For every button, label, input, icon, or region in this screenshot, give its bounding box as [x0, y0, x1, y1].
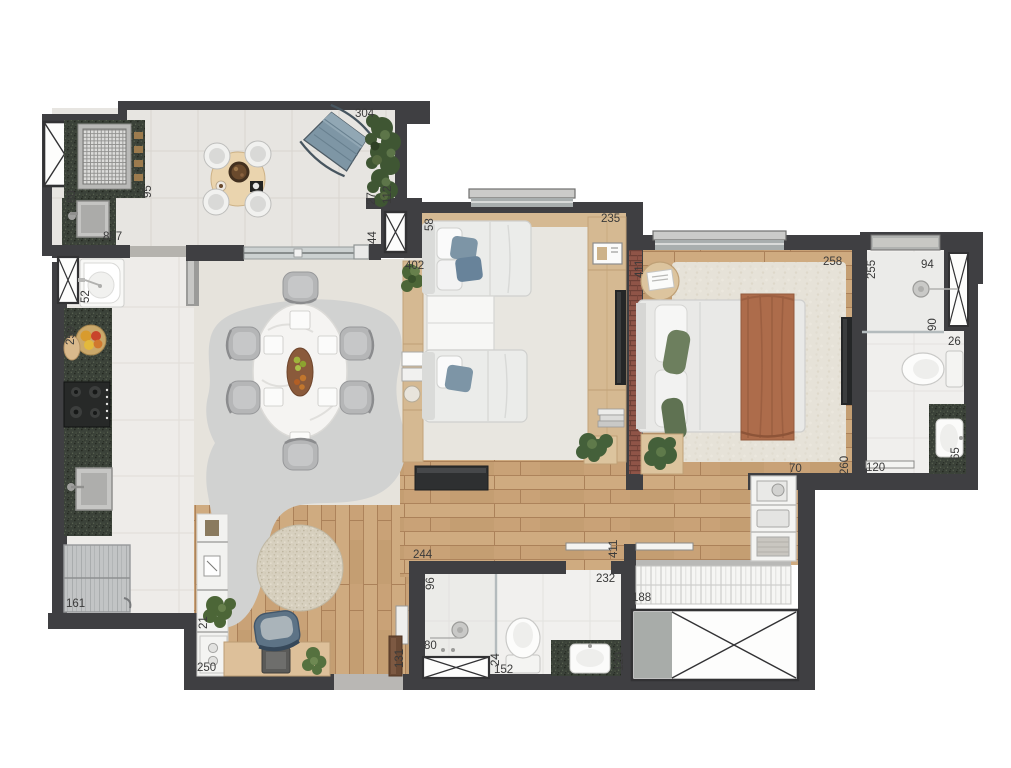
svg-text:58: 58 — [424, 218, 436, 231]
svg-text:235: 235 — [601, 213, 620, 225]
svg-text:80: 80 — [66, 190, 78, 203]
svg-text:411: 411 — [608, 540, 620, 558]
svg-text:260: 260 — [839, 456, 851, 475]
svg-text:112: 112 — [382, 186, 394, 204]
svg-text:402: 402 — [405, 260, 424, 272]
svg-text:44: 44 — [367, 231, 379, 244]
svg-text:255: 255 — [866, 260, 878, 279]
svg-text:867: 867 — [103, 231, 122, 243]
svg-text:96: 96 — [425, 577, 437, 590]
svg-text:52: 52 — [80, 290, 92, 303]
svg-text:152: 152 — [494, 664, 513, 676]
svg-text:244: 244 — [413, 549, 433, 561]
svg-text:94: 94 — [921, 259, 934, 271]
svg-text:258: 258 — [823, 256, 842, 268]
svg-text:90: 90 — [927, 318, 939, 331]
svg-text:250: 250 — [197, 662, 216, 674]
svg-text:26: 26 — [948, 336, 961, 348]
svg-text:131: 131 — [394, 649, 406, 668]
svg-text:27: 27 — [366, 192, 378, 205]
svg-text:80: 80 — [424, 640, 437, 652]
svg-text:65: 65 — [950, 447, 962, 460]
svg-text:95: 95 — [142, 185, 154, 198]
svg-text:259: 259 — [65, 326, 77, 345]
svg-text:411: 411 — [634, 260, 646, 278]
svg-text:70: 70 — [789, 463, 802, 475]
svg-text:188: 188 — [632, 592, 651, 604]
svg-text:21: 21 — [198, 616, 210, 629]
svg-text:120: 120 — [866, 462, 885, 474]
svg-text:232: 232 — [596, 573, 615, 585]
svg-text:120: 120 — [614, 652, 626, 671]
svg-text:161: 161 — [66, 598, 85, 610]
svg-text:304: 304 — [355, 108, 375, 120]
